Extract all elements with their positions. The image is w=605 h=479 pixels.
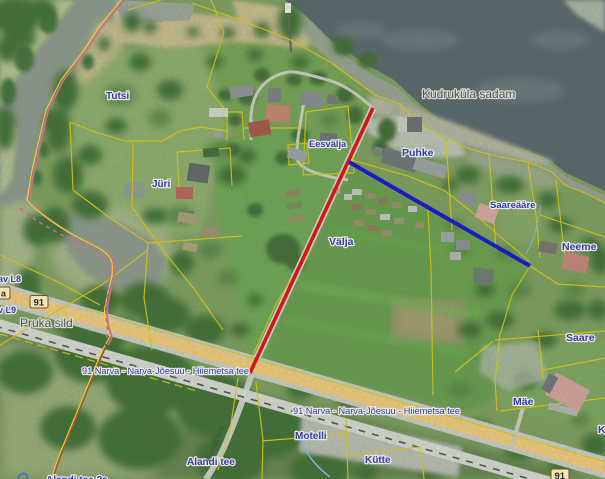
svg-text:91: 91 xyxy=(555,471,566,479)
svg-text:91: 91 xyxy=(34,298,45,309)
